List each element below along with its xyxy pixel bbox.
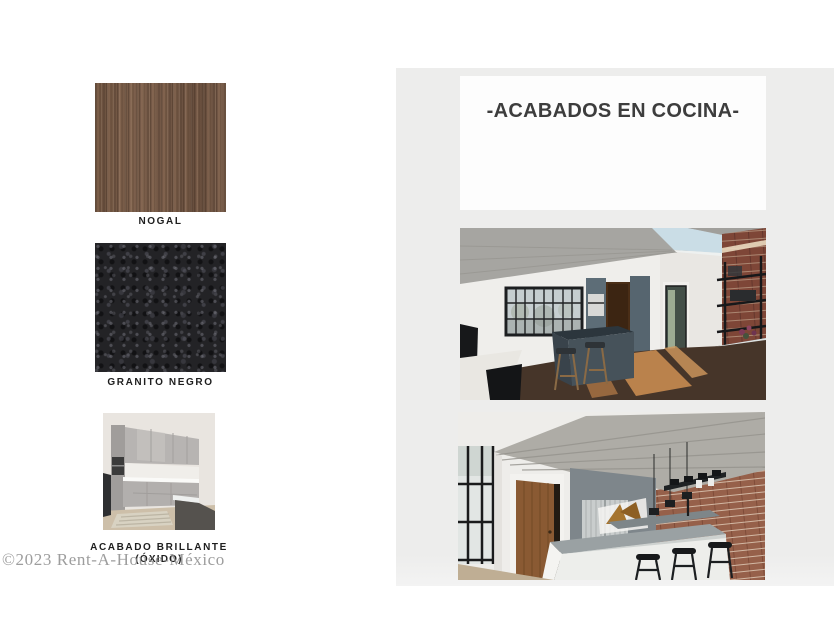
walnut-wood-swatch <box>95 83 226 212</box>
walnut-label: NOGAL <box>95 216 226 228</box>
right-panel: -ACABADOS EN COCINA- <box>396 68 834 586</box>
chair-silhouette <box>486 364 522 400</box>
kitchen-render-2 <box>458 412 765 580</box>
black-granite-swatch <box>95 243 226 372</box>
steel-window <box>458 446 494 564</box>
steel-window <box>506 288 582 335</box>
kitchen-render-1 <box>460 228 766 400</box>
watermark: ©2023 Rent-A-House-México <box>2 550 422 570</box>
chair-silhouette <box>103 473 111 517</box>
title-card: -ACABADOS EN COCINA- <box>460 76 766 210</box>
glossy-finish-photo <box>103 413 215 530</box>
finishes-flyer: { "title": "-ACABADOS EN COCINA-", "mate… <box>0 0 840 630</box>
oven <box>588 294 604 316</box>
granite-label: GRANITO NEGRO <box>95 377 226 389</box>
page-title: -ACABADOS EN COCINA- <box>487 100 740 123</box>
